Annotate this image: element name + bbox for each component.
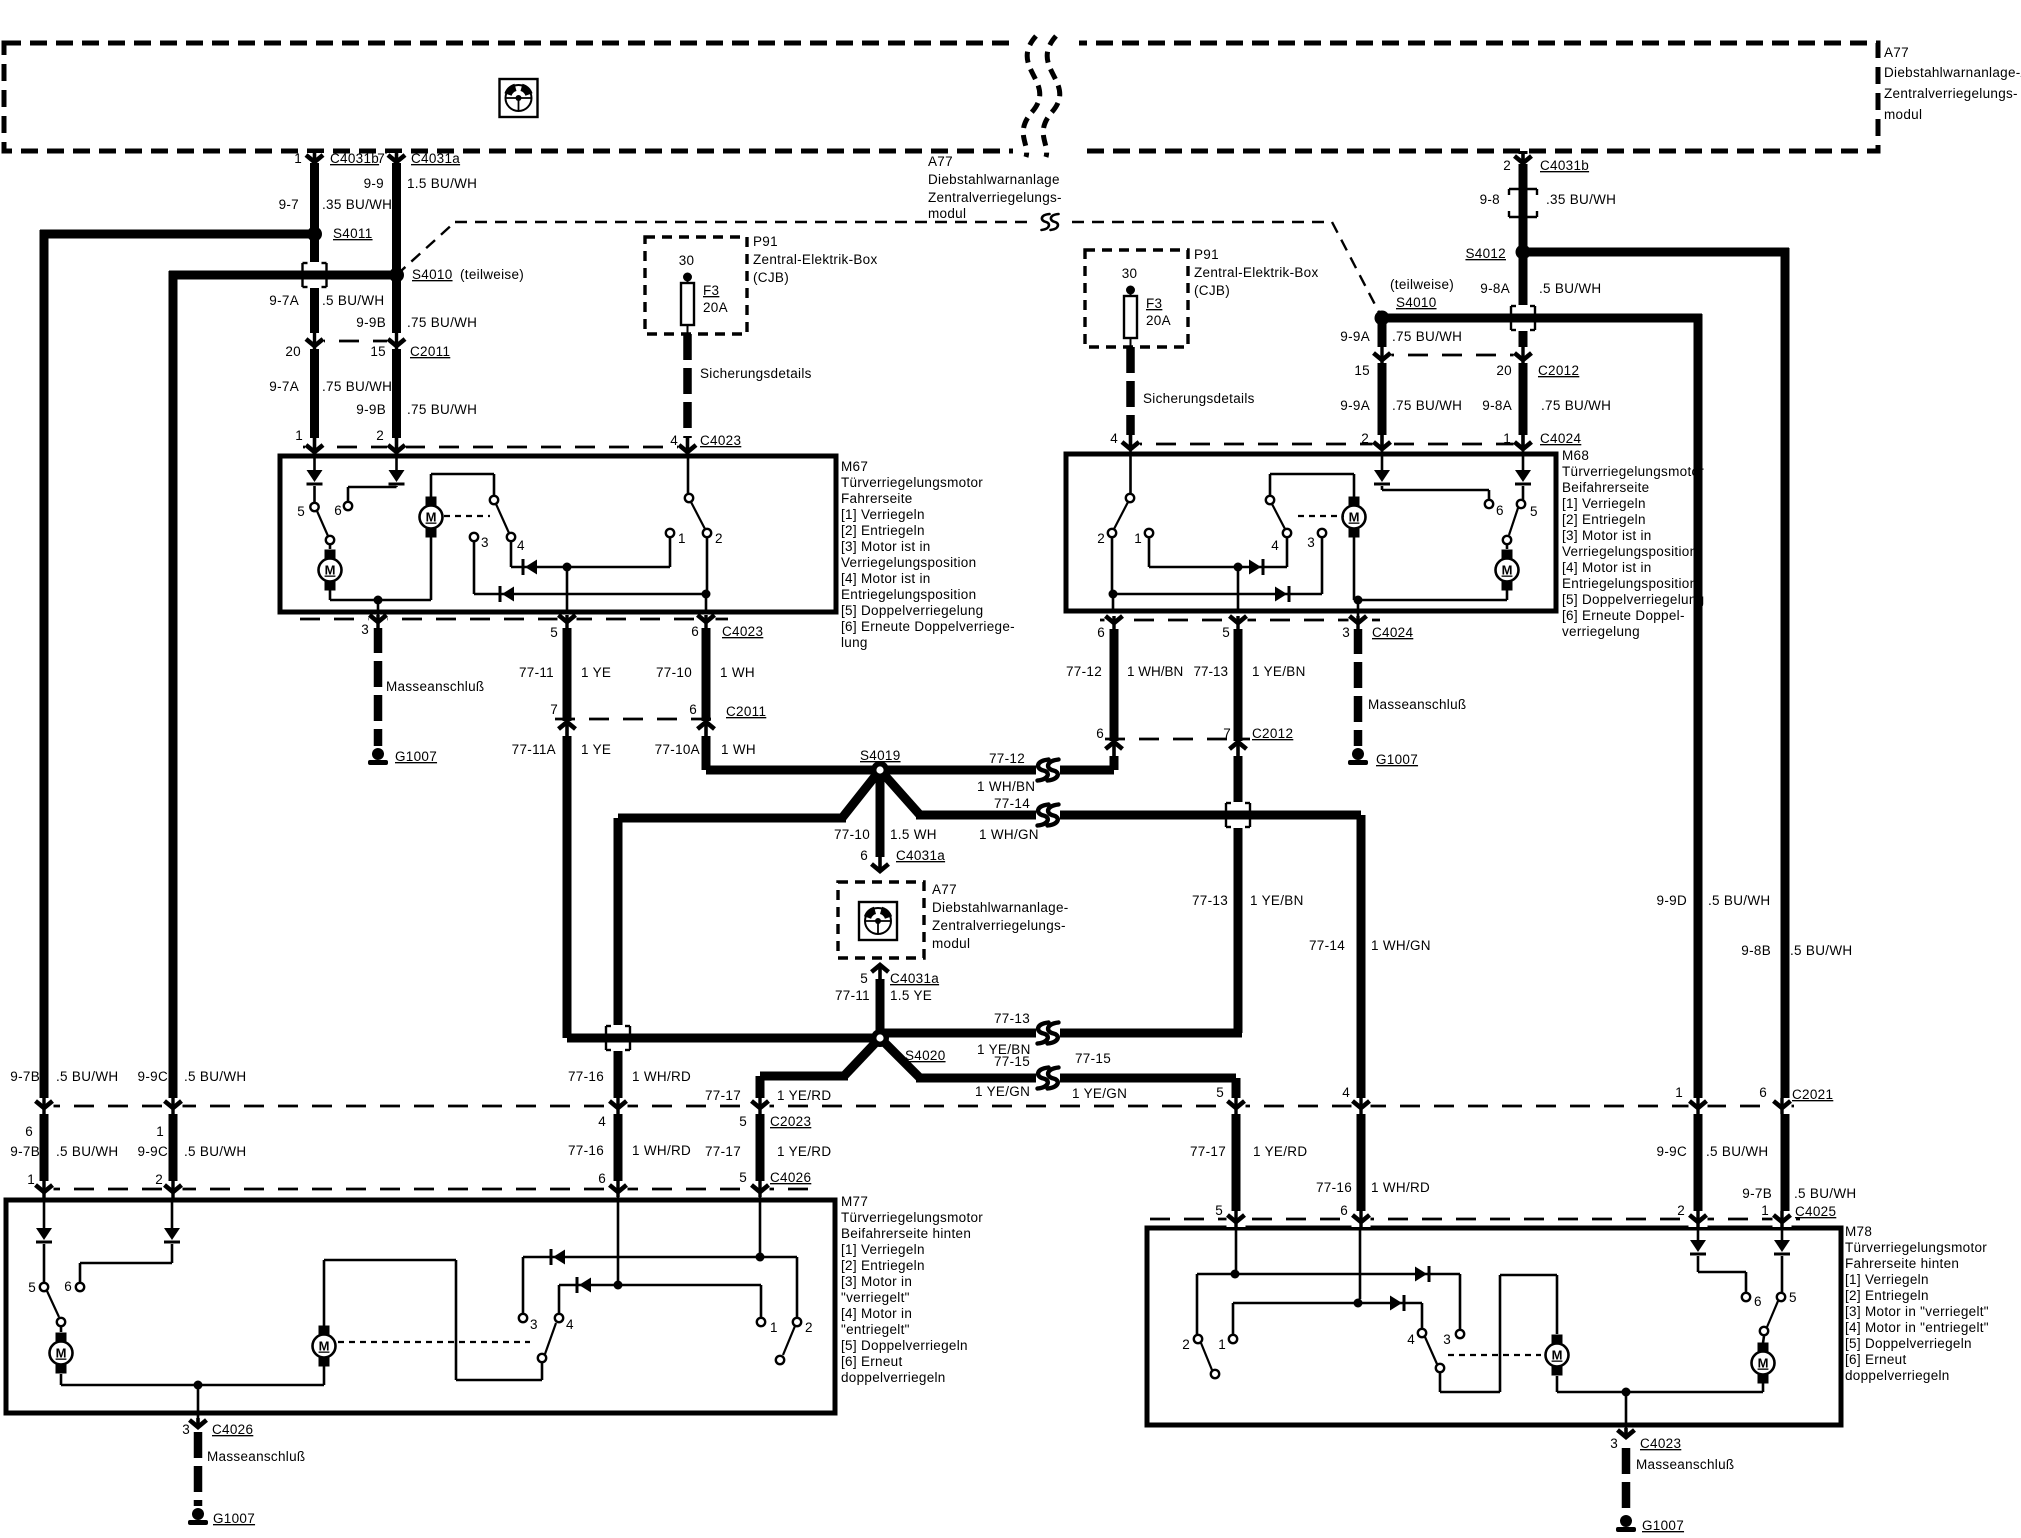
svg-text:6: 6 <box>598 1171 606 1186</box>
svg-text:[4] Motor in "entriegelt": [4] Motor in "entriegelt" <box>1845 1320 1989 1335</box>
svg-text:.5 BU/WH: .5 BU/WH <box>184 1144 246 1159</box>
svg-text:Beifahrerseite hinten: Beifahrerseite hinten <box>841 1226 971 1241</box>
svg-text:.75 BU/WH: .75 BU/WH <box>1541 398 1611 413</box>
svg-text:M: M <box>1552 1348 1563 1363</box>
svg-text:Entriegelungsposition: Entriegelungsposition <box>1562 576 1697 591</box>
svg-text:[5] Doppelverriegeln: [5] Doppelverriegeln <box>1845 1336 1972 1351</box>
svg-text:.5 BU/WH: .5 BU/WH <box>1706 1144 1768 1159</box>
svg-text:3: 3 <box>530 1317 538 1332</box>
svg-text:6: 6 <box>1340 1203 1348 1218</box>
svg-text:Masseanschluß: Masseanschluß <box>386 679 484 694</box>
svg-text:C4031a: C4031a <box>411 151 460 166</box>
svg-text:[3] Motor in "verriegelt": [3] Motor in "verriegelt" <box>1845 1304 1989 1319</box>
svg-text:.75 BU/WH: .75 BU/WH <box>407 315 477 330</box>
svg-text:[2] Entriegeln: [2] Entriegeln <box>841 1258 925 1273</box>
svg-text:[3] Motor ist in: [3] Motor ist in <box>1562 528 1652 543</box>
svg-text:77-11: 77-11 <box>835 988 870 1003</box>
svg-text:1 WH/RD: 1 WH/RD <box>1371 1180 1430 1195</box>
svg-text:1 YE/BN: 1 YE/BN <box>1250 893 1304 908</box>
svg-text:P91: P91 <box>1194 247 1219 262</box>
svg-text:G1007: G1007 <box>213 1511 255 1526</box>
svg-text:77-15: 77-15 <box>994 1054 1030 1069</box>
svg-text:1: 1 <box>1134 531 1142 546</box>
svg-text:77-11A: 77-11A <box>512 742 556 757</box>
svg-text:[3] Motor in: [3] Motor in <box>841 1274 912 1289</box>
svg-text:Verriegelungsposition: Verriegelungsposition <box>841 555 976 570</box>
svg-text:1 YE/RD: 1 YE/RD <box>1253 1144 1307 1159</box>
svg-text:3: 3 <box>1443 1332 1451 1347</box>
svg-text:20A: 20A <box>1146 313 1171 328</box>
svg-text:(teilweise): (teilweise) <box>1390 277 1454 292</box>
svg-text:G1007: G1007 <box>1376 752 1418 767</box>
svg-text:6: 6 <box>1096 726 1104 741</box>
svg-text:C2023: C2023 <box>770 1114 811 1129</box>
svg-text:6: 6 <box>1097 625 1105 640</box>
svg-text:C4031b: C4031b <box>330 151 379 166</box>
svg-text:6: 6 <box>1754 1294 1762 1309</box>
svg-text:77-11: 77-11 <box>519 665 554 680</box>
svg-text:[5] Doppelverriegeln: [5] Doppelverriegeln <box>841 1338 968 1353</box>
svg-text:30: 30 <box>1122 266 1138 281</box>
svg-text:4: 4 <box>598 1114 606 1129</box>
svg-text:9-8: 9-8 <box>1480 192 1500 207</box>
svg-text:F3: F3 <box>1146 296 1162 311</box>
svg-text:[2] Entriegeln: [2] Entriegeln <box>1845 1288 1929 1303</box>
svg-text:20A: 20A <box>703 300 728 315</box>
svg-text:C4023: C4023 <box>1640 1436 1681 1451</box>
svg-text:3: 3 <box>182 1422 190 1437</box>
svg-text:C2021: C2021 <box>1792 1087 1833 1102</box>
svg-text:20: 20 <box>1496 363 1512 378</box>
svg-text:A77: A77 <box>928 154 953 169</box>
svg-text:5: 5 <box>1222 625 1230 640</box>
svg-text:[2] Entriegeln: [2] Entriegeln <box>841 523 925 538</box>
svg-text:77-17: 77-17 <box>705 1144 741 1159</box>
svg-text:1 WH/BN: 1 WH/BN <box>1127 664 1183 679</box>
svg-text:.75 BU/WH: .75 BU/WH <box>1392 398 1462 413</box>
svg-text:9-9C: 9-9C <box>1657 1144 1687 1159</box>
svg-text:7: 7 <box>1223 726 1231 741</box>
svg-text:(teilweise): (teilweise) <box>460 267 524 282</box>
svg-text:2: 2 <box>155 1172 163 1187</box>
svg-text:1.5 YE: 1.5 YE <box>890 988 932 1003</box>
svg-text:C4023: C4023 <box>722 624 763 639</box>
svg-text:77-10A: 77-10A <box>655 742 700 757</box>
svg-text:Masseanschluß: Masseanschluß <box>1636 1457 1734 1472</box>
svg-text:.5 BU/WH: .5 BU/WH <box>56 1069 118 1084</box>
svg-text:A77: A77 <box>1884 45 1909 60</box>
svg-text:.35 BU/WH: .35 BU/WH <box>322 197 392 212</box>
svg-text:6: 6 <box>25 1124 33 1139</box>
svg-text:[4] Motor ist in: [4] Motor ist in <box>841 571 931 586</box>
svg-text:5: 5 <box>860 971 868 986</box>
svg-text:Türverriegelungsmotor: Türverriegelungsmotor <box>1562 464 1704 479</box>
svg-text:9-9A: 9-9A <box>1340 398 1370 413</box>
svg-text:[1] Verriegeln: [1] Verriegeln <box>841 1242 925 1257</box>
svg-text:4: 4 <box>1271 538 1279 553</box>
svg-text:77-17: 77-17 <box>1190 1144 1226 1159</box>
svg-text:9-9A: 9-9A <box>1340 329 1370 344</box>
svg-text:6: 6 <box>860 848 868 863</box>
svg-text:30: 30 <box>679 253 695 268</box>
svg-text:C2011: C2011 <box>410 344 450 359</box>
svg-text:9-9B: 9-9B <box>356 315 386 330</box>
svg-text:5: 5 <box>739 1114 747 1129</box>
svg-text:verriegelung: verriegelung <box>1562 624 1640 639</box>
svg-text:doppelverriegeln: doppelverriegeln <box>841 1370 946 1385</box>
svg-text:4: 4 <box>1407 1332 1415 1347</box>
svg-text:S4020: S4020 <box>905 1048 946 1063</box>
svg-text:C4026: C4026 <box>770 1170 811 1185</box>
svg-text:C4031a: C4031a <box>890 971 939 986</box>
svg-text:4: 4 <box>1342 1085 1350 1100</box>
svg-text:"entriegelt": "entriegelt" <box>841 1322 910 1337</box>
svg-text:77-16: 77-16 <box>568 1143 604 1158</box>
svg-text:9-7A: 9-7A <box>269 379 299 394</box>
svg-text:1: 1 <box>1503 431 1511 446</box>
svg-text:Türverriegelungsmotor: Türverriegelungsmotor <box>1845 1240 1987 1255</box>
svg-text:[1] Verriegeln: [1] Verriegeln <box>1562 496 1646 511</box>
svg-text:C4031b: C4031b <box>1540 158 1589 173</box>
svg-text:.75 BU/WH: .75 BU/WH <box>407 402 477 417</box>
svg-text:5: 5 <box>297 504 305 519</box>
svg-text:lung: lung <box>841 635 868 650</box>
svg-text:9-9C: 9-9C <box>138 1144 168 1159</box>
svg-text:9-7B: 9-7B <box>10 1069 40 1084</box>
svg-text:1 WH/GN: 1 WH/GN <box>979 827 1039 842</box>
svg-text:3: 3 <box>1307 535 1315 550</box>
svg-text:Masseanschluß: Masseanschluß <box>1368 697 1466 712</box>
svg-text:2: 2 <box>805 1320 813 1335</box>
svg-text:[2] Entriegeln: [2] Entriegeln <box>1562 512 1646 527</box>
svg-text:Türverriegelungsmotor: Türverriegelungsmotor <box>841 1210 983 1225</box>
svg-text:C2012: C2012 <box>1252 726 1293 741</box>
svg-text:"verriegelt": "verriegelt" <box>841 1290 910 1305</box>
svg-text:77-13: 77-13 <box>994 1011 1030 1026</box>
svg-text:M: M <box>1758 1356 1769 1371</box>
svg-text:M: M <box>319 1339 330 1354</box>
svg-text:3: 3 <box>481 535 489 550</box>
svg-text:[5] Doppelverriegelung: [5] Doppelverriegelung <box>841 603 983 618</box>
svg-text:C4025: C4025 <box>1795 1204 1836 1219</box>
svg-text:6: 6 <box>689 702 697 717</box>
svg-text:3: 3 <box>1342 625 1350 640</box>
svg-text:5: 5 <box>28 1280 36 1295</box>
svg-text:7: 7 <box>550 702 558 717</box>
svg-text:[6] Erneute Doppel-: [6] Erneute Doppel- <box>1562 608 1685 623</box>
svg-text:1: 1 <box>27 1172 35 1187</box>
svg-text:9-7: 9-7 <box>279 197 299 212</box>
svg-text:5: 5 <box>1215 1203 1223 1218</box>
svg-text:Zentral-Elektrik-Box: Zentral-Elektrik-Box <box>753 252 878 267</box>
svg-text:6: 6 <box>64 1279 72 1294</box>
svg-text:1 YE: 1 YE <box>581 665 611 680</box>
svg-text:6: 6 <box>1759 1085 1767 1100</box>
svg-text:1.5 WH: 1.5 WH <box>890 827 937 842</box>
svg-text:5: 5 <box>739 1170 747 1185</box>
svg-text:5: 5 <box>550 625 558 640</box>
svg-text:9-9D: 9-9D <box>1657 893 1687 908</box>
svg-text:5: 5 <box>1530 504 1538 519</box>
svg-text:[6] Erneute Doppelverriege-: [6] Erneute Doppelverriege- <box>841 619 1015 634</box>
svg-text:(CJB): (CJB) <box>753 270 789 285</box>
svg-text:6: 6 <box>334 503 342 518</box>
svg-text:C4024: C4024 <box>1372 625 1413 640</box>
svg-text:Sicherungsdetails: Sicherungsdetails <box>700 366 812 381</box>
svg-text:77-10: 77-10 <box>656 665 692 680</box>
svg-text:.75 BU/WH: .75 BU/WH <box>322 379 392 394</box>
svg-text:77-17: 77-17 <box>705 1088 741 1103</box>
svg-text:77-13: 77-13 <box>1193 664 1228 679</box>
svg-text:[5] Doppelverriegelung: [5] Doppelverriegelung <box>1562 592 1704 607</box>
svg-text:M: M <box>426 510 437 525</box>
svg-text:2: 2 <box>1503 158 1511 173</box>
svg-text:4: 4 <box>517 538 525 553</box>
svg-text:[1] Verriegeln: [1] Verriegeln <box>841 507 925 522</box>
svg-text:C2011: C2011 <box>726 704 766 719</box>
svg-text:5: 5 <box>1789 1290 1797 1305</box>
svg-text:1: 1 <box>678 531 686 546</box>
svg-text:.5 BU/WH: .5 BU/WH <box>1794 1186 1856 1201</box>
svg-text:77-10: 77-10 <box>834 827 870 842</box>
svg-text:.5 BU/WH: .5 BU/WH <box>1708 893 1770 908</box>
svg-text:9-8B: 9-8B <box>1741 943 1771 958</box>
svg-text:9-7B: 9-7B <box>10 1144 40 1159</box>
svg-text:Entriegelungsposition: Entriegelungsposition <box>841 587 976 602</box>
svg-text:Zentralverriegelungs-: Zentralverriegelungs- <box>928 190 1062 205</box>
svg-text:1: 1 <box>1761 1203 1769 1218</box>
svg-text:4: 4 <box>670 433 678 448</box>
svg-text:7: 7 <box>377 151 385 166</box>
svg-text:9-9: 9-9 <box>364 176 384 191</box>
svg-text:3: 3 <box>361 622 369 637</box>
svg-text:.35 BU/WH: .35 BU/WH <box>1546 192 1616 207</box>
svg-text:2: 2 <box>715 531 723 546</box>
svg-text:1 WH: 1 WH <box>720 665 755 680</box>
svg-text:1 YE/RD: 1 YE/RD <box>777 1088 831 1103</box>
svg-text:1 WH/GN: 1 WH/GN <box>1371 938 1431 953</box>
svg-text:6: 6 <box>1496 503 1504 518</box>
svg-text:15: 15 <box>1354 363 1370 378</box>
svg-text:doppelverriegeln: doppelverriegeln <box>1845 1368 1950 1383</box>
svg-text:[4] Motor ist in: [4] Motor ist in <box>1562 560 1652 575</box>
svg-text:modul: modul <box>1884 107 1922 122</box>
svg-text:Türverriegelungsmotor: Türverriegelungsmotor <box>841 475 983 490</box>
svg-text:Diebstahlwarnanlage-/-: Diebstahlwarnanlage-/- <box>1884 65 2021 80</box>
svg-text:M78: M78 <box>1845 1224 1872 1239</box>
svg-text:.5 BU/WH: .5 BU/WH <box>1539 281 1601 296</box>
svg-text:Zentralverriegelungs-: Zentralverriegelungs- <box>932 918 1066 933</box>
svg-text:modul: modul <box>928 206 966 221</box>
svg-text:C4026: C4026 <box>212 1422 253 1437</box>
svg-text:4: 4 <box>566 1317 574 1332</box>
svg-text:[3] Motor ist in: [3] Motor ist in <box>841 539 931 554</box>
svg-text:1 WH: 1 WH <box>721 742 756 757</box>
svg-text:1 WH/BN: 1 WH/BN <box>977 779 1035 794</box>
svg-text:1: 1 <box>294 151 302 166</box>
svg-text:77-14: 77-14 <box>994 796 1030 811</box>
svg-text:Diebstahlwarnanlage: Diebstahlwarnanlage <box>928 172 1060 187</box>
svg-text:9-9C: 9-9C <box>138 1069 168 1084</box>
svg-text:1: 1 <box>1218 1337 1226 1352</box>
svg-text:A77: A77 <box>932 882 957 897</box>
svg-text:Sicherungsdetails: Sicherungsdetails <box>1143 391 1255 406</box>
svg-text:77-16: 77-16 <box>1316 1180 1352 1195</box>
svg-text:1 WH/RD: 1 WH/RD <box>632 1069 691 1084</box>
svg-text:C2012: C2012 <box>1538 363 1579 378</box>
svg-text:[4] Motor in: [4] Motor in <box>841 1306 912 1321</box>
svg-text:M: M <box>325 563 336 578</box>
svg-text:G1007: G1007 <box>1642 1518 1684 1533</box>
svg-text:1: 1 <box>295 428 303 443</box>
svg-text:modul: modul <box>932 936 970 951</box>
svg-text:P91: P91 <box>753 234 778 249</box>
svg-text:M: M <box>56 1346 67 1361</box>
svg-text:1 YE: 1 YE <box>581 742 611 757</box>
svg-text:.5 BU/WH: .5 BU/WH <box>1790 943 1852 958</box>
svg-text:Verriegelungsposition: Verriegelungsposition <box>1562 544 1697 559</box>
svg-text:Zentralverriegelungs-: Zentralverriegelungs- <box>1884 86 2018 101</box>
svg-text:6: 6 <box>691 624 699 639</box>
svg-text:77-12: 77-12 <box>1066 664 1102 679</box>
svg-text:[6] Erneut: [6] Erneut <box>841 1354 903 1369</box>
svg-text:Fahrerseite: Fahrerseite <box>841 491 913 506</box>
svg-text:M: M <box>1349 510 1360 525</box>
svg-text:20: 20 <box>285 344 301 359</box>
svg-text:9-8A: 9-8A <box>1482 398 1512 413</box>
svg-text:5: 5 <box>1216 1085 1224 1100</box>
svg-text:77-12: 77-12 <box>989 751 1025 766</box>
svg-text:Zentral-Elektrik-Box: Zentral-Elektrik-Box <box>1194 265 1319 280</box>
svg-text:1 YE/BN: 1 YE/BN <box>1252 664 1306 679</box>
svg-text:3: 3 <box>1610 1436 1618 1451</box>
svg-text:2: 2 <box>1361 431 1369 446</box>
svg-text:[6] Erneut: [6] Erneut <box>1845 1352 1907 1367</box>
svg-text:M67: M67 <box>841 459 868 474</box>
svg-text:S4019: S4019 <box>860 748 901 763</box>
svg-text:S4010: S4010 <box>1396 295 1437 310</box>
svg-text:77-13: 77-13 <box>1192 893 1228 908</box>
svg-text:77-14: 77-14 <box>1309 938 1345 953</box>
svg-text:1 YE/RD: 1 YE/RD <box>777 1144 831 1159</box>
svg-text:1: 1 <box>156 1124 164 1139</box>
svg-text:C4024: C4024 <box>1540 431 1581 446</box>
svg-text:1: 1 <box>770 1320 778 1335</box>
svg-text:15: 15 <box>370 344 386 359</box>
svg-text:1 YE/GN: 1 YE/GN <box>975 1084 1030 1099</box>
svg-text:.5 BU/WH: .5 BU/WH <box>322 293 384 308</box>
svg-text:Masseanschluß: Masseanschluß <box>207 1449 305 1464</box>
svg-text:1 WH/RD: 1 WH/RD <box>632 1143 691 1158</box>
svg-text:C4031a: C4031a <box>896 848 945 863</box>
svg-text:.75 BU/WH: .75 BU/WH <box>1392 329 1462 344</box>
svg-text:M68: M68 <box>1562 448 1589 463</box>
svg-text:1.5 BU/WH: 1.5 BU/WH <box>407 176 477 191</box>
svg-text:9-7A: 9-7A <box>269 293 299 308</box>
svg-text:2: 2 <box>376 428 384 443</box>
svg-text:Beifahrerseite: Beifahrerseite <box>1562 480 1650 495</box>
svg-text:1: 1 <box>1675 1085 1683 1100</box>
svg-text:2: 2 <box>1097 531 1105 546</box>
svg-text:Diebstahlwarnanlage-: Diebstahlwarnanlage- <box>932 900 1069 915</box>
svg-text:.5 BU/WH: .5 BU/WH <box>56 1144 118 1159</box>
svg-text:F3: F3 <box>703 283 719 298</box>
svg-text:9-9B: 9-9B <box>356 402 386 417</box>
svg-text:77-15: 77-15 <box>1075 1051 1111 1066</box>
svg-text:Fahrerseite hinten: Fahrerseite hinten <box>1845 1256 1959 1271</box>
svg-text:2: 2 <box>1677 1203 1685 1218</box>
svg-text:77-16: 77-16 <box>568 1069 604 1084</box>
svg-text:2: 2 <box>1182 1337 1190 1352</box>
svg-text:9-8A: 9-8A <box>1480 281 1510 296</box>
svg-text:S4012: S4012 <box>1465 246 1506 261</box>
svg-text:(CJB): (CJB) <box>1194 283 1230 298</box>
svg-text:S4010: S4010 <box>412 267 453 282</box>
svg-text:1 YE/GN: 1 YE/GN <box>1072 1086 1127 1101</box>
svg-text:9-7B: 9-7B <box>1742 1186 1772 1201</box>
svg-text:C4023: C4023 <box>700 433 741 448</box>
svg-text:M: M <box>1502 563 1513 578</box>
svg-text:.5 BU/WH: .5 BU/WH <box>184 1069 246 1084</box>
svg-text:[1] Verriegeln: [1] Verriegeln <box>1845 1272 1929 1287</box>
svg-text:G1007: G1007 <box>395 749 437 764</box>
svg-text:4: 4 <box>1110 431 1118 446</box>
svg-text:M77: M77 <box>841 1194 868 1209</box>
svg-text:S4011: S4011 <box>333 226 373 241</box>
